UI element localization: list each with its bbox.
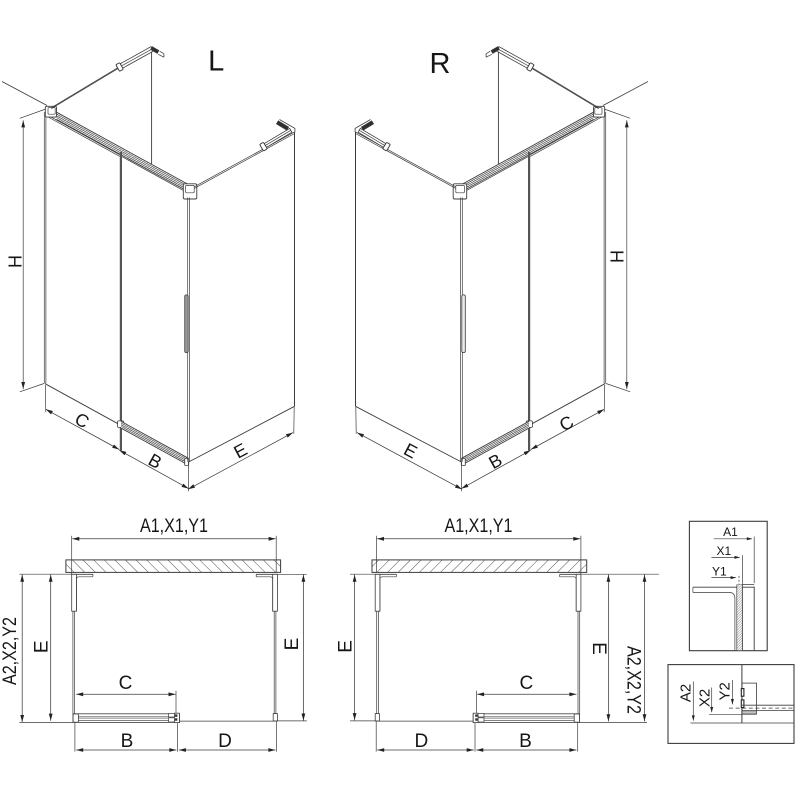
svg-text:C: C xyxy=(519,673,533,694)
svg-text:Y2: Y2 xyxy=(717,682,734,700)
svg-text:E: E xyxy=(282,638,303,651)
svg-text:D: D xyxy=(218,731,232,752)
svg-text:A2,X2,Y2: A2,X2,Y2 xyxy=(0,617,21,685)
svg-text:A1,X1,Y1: A1,X1,Y1 xyxy=(445,516,513,537)
svg-text:X2: X2 xyxy=(697,689,714,707)
svg-text:R: R xyxy=(430,48,451,80)
svg-text:H: H xyxy=(5,255,25,268)
svg-text:X1: X1 xyxy=(716,544,731,558)
svg-text:A2,X2,Y2: A2,X2,Y2 xyxy=(622,646,643,714)
svg-text:A2: A2 xyxy=(678,684,695,702)
svg-text:B: B xyxy=(121,731,134,752)
svg-text:D: D xyxy=(415,731,429,752)
svg-text:E: E xyxy=(32,640,53,653)
svg-text:A1: A1 xyxy=(723,525,738,539)
svg-text:E: E xyxy=(336,640,357,653)
svg-text:Y1: Y1 xyxy=(712,565,727,579)
svg-text:L: L xyxy=(208,46,224,78)
svg-text:C: C xyxy=(119,673,133,694)
svg-text:B: B xyxy=(519,731,532,752)
svg-text:H: H xyxy=(608,250,628,263)
svg-text:A1,X1,Y1: A1,X1,Y1 xyxy=(140,516,208,537)
svg-text:E: E xyxy=(588,642,609,655)
